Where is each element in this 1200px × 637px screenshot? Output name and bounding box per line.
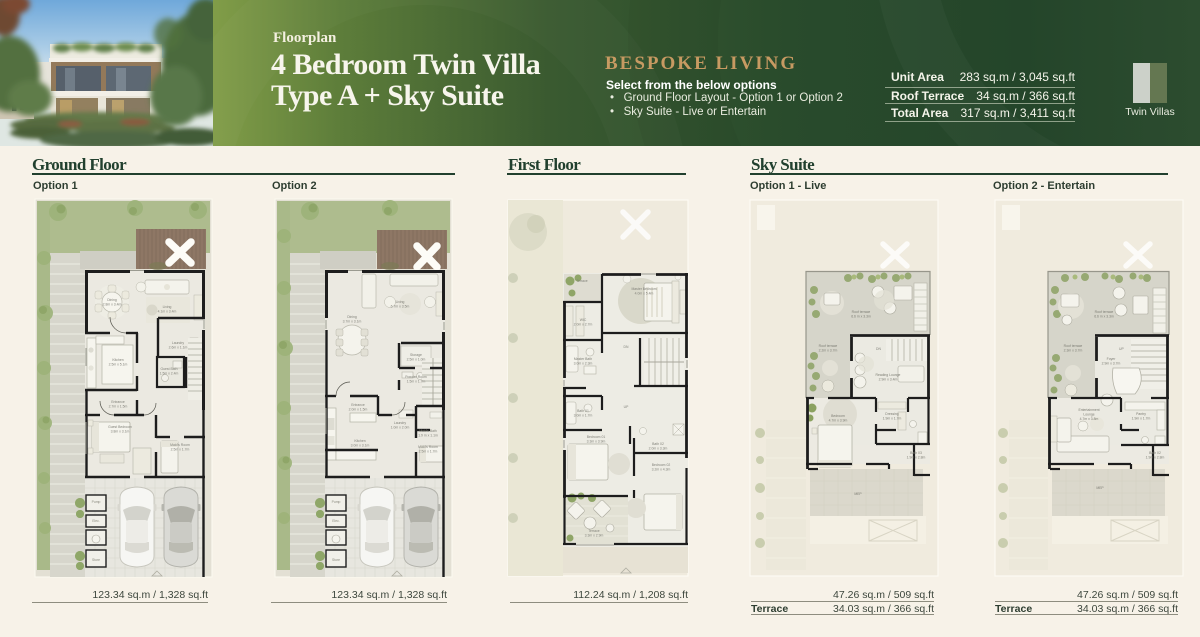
svg-text:4.7m x 3.9m: 4.7m x 3.9m [829,419,848,423]
svg-text:Entrance: Entrance [111,400,125,404]
svg-text:Store: Store [92,558,100,562]
svg-text:Bedroom 01: Bedroom 01 [587,435,606,439]
svg-text:Maid's Room: Maid's Room [170,443,190,447]
svg-text:DN: DN [624,345,629,349]
svg-text:Powder Room: Powder Room [405,375,427,379]
svg-text:Pump: Pump [92,500,101,504]
svg-text:Reading Lounge: Reading Lounge [876,373,901,377]
svg-text:Bedroom 02: Bedroom 02 [652,463,671,467]
svg-text:Maid's Room: Maid's Room [418,445,438,449]
svg-text:4.7m x 3.8m: 4.7m x 3.8m [1080,417,1099,421]
svg-text:1.5m x 2.4m: 1.5m x 2.4m [160,372,179,376]
svg-text:Elec.: Elec. [332,519,340,523]
svg-text:3.3m x 3.9m: 3.3m x 3.9m [587,440,606,444]
svg-text:3.7m x 3.1m: 3.7m x 3.1m [343,320,362,324]
svg-text:1.9 m x 1.1m: 1.9 m x 1.1m [418,434,438,438]
svg-text:Guest Bath: Guest Bath [161,367,178,371]
svg-text:2.6m x 1.1m: 2.6m x 1.1m [169,346,188,350]
svg-text:Entrance: Entrance [351,403,365,407]
svg-text:1.5m x 1.7m: 1.5m x 1.7m [407,380,426,384]
svg-text:2.2m x 3.7m: 2.2m x 3.7m [819,349,838,353]
svg-text:6.6 m x 3.3m: 6.6 m x 3.3m [1094,315,1114,319]
svg-text:2.5m x 1.7m: 2.5m x 1.7m [419,450,438,454]
svg-text:3.0m x 1.7m: 3.0m x 1.7m [574,414,593,418]
svg-text:1.0m x 2.0m: 1.0m x 2.0m [391,426,410,430]
svg-text:3.8m x 3.1m: 3.8m x 3.1m [111,430,130,434]
svg-text:4.0m x 5.4m: 4.0m x 5.4m [635,292,654,296]
svg-text:Kitchen: Kitchen [112,358,123,362]
svg-text:1.9m x 2.8m: 1.9m x 2.8m [907,456,926,460]
svg-text:2.8m x 3.4m: 2.8m x 3.4m [103,303,122,307]
svg-text:Roof terrace: Roof terrace [1095,310,1114,314]
svg-text:2.5m x 5.1m: 2.5m x 5.1m [109,363,128,367]
svg-text:Master Bath: Master Bath [574,357,592,361]
svg-text:Roof terrace: Roof terrace [1064,344,1083,348]
svg-text:UP: UP [1119,347,1124,351]
svg-text:Bedroom: Bedroom [831,414,845,418]
svg-text:Pump: Pump [332,500,341,504]
svg-text:2.9m x 3.7m: 2.9m x 3.7m [1102,362,1121,366]
svg-text:2.9m x 3.4m: 2.9m x 3.4m [879,378,898,382]
svg-text:3.0m x 2.3m: 3.0m x 2.3m [574,362,593,366]
svg-text:Terrace: Terrace [576,279,587,283]
svg-text:3.2m x 4.3m: 3.2m x 4.3m [652,468,671,472]
svg-text:Elec.: Elec. [92,519,100,523]
svg-text:Bath 02: Bath 02 [652,442,664,446]
svg-text:2.0m x 3.3m: 2.0m x 3.3m [649,447,668,451]
svg-text:WIC: WIC [580,318,587,322]
svg-text:Foyer: Foyer [1107,357,1117,361]
svg-text:Dining: Dining [347,315,357,319]
svg-text:2.3m x 3.7m: 2.3m x 3.7m [1064,349,1083,353]
svg-text:2.0m x 2.7m: 2.0m x 2.7m [574,323,593,327]
svg-text:3.3m x 2.9m: 3.3m x 2.9m [585,534,604,538]
svg-text:Dressing: Dressing [885,412,898,416]
svg-text:Living: Living [396,300,405,304]
svg-text:Storage: Storage [410,353,422,357]
svg-text:Dining: Dining [107,298,117,302]
svg-text:Guest Bedroom: Guest Bedroom [108,425,132,429]
svg-text:Roof terrace: Roof terrace [852,310,871,314]
svg-text:Kitchen: Kitchen [354,439,365,443]
svg-text:Roof terrace: Roof terrace [819,344,838,348]
svg-text:4.1m x 3.4m: 4.1m x 3.4m [158,310,177,314]
svg-text:1.9m x 1.7m: 1.9m x 1.7m [883,417,902,421]
svg-text:MEP: MEP [854,492,862,496]
svg-text:3.0m x 3.1m: 3.0m x 3.1m [351,444,370,448]
svg-text:Entertainment: Entertainment [1078,408,1099,412]
svg-text:Store: Store [332,558,340,562]
svg-text:2.5m x 1.7m: 2.5m x 1.7m [171,448,190,452]
svg-text:Laundry: Laundry [172,341,185,345]
svg-text:Bath 01: Bath 01 [577,409,589,413]
svg-text:Lounge: Lounge [1083,413,1094,417]
svg-text:Bath 02: Bath 02 [1149,451,1161,455]
svg-text:Terrace: Terrace [588,529,599,533]
svg-text:Living: Living [163,305,172,309]
svg-text:2.0m x 1.5m: 2.0m x 1.5m [349,408,368,412]
svg-text:Maid's Bath: Maid's Bath [419,429,437,433]
svg-text:1.9m x 1.7m: 1.9m x 1.7m [1132,417,1151,421]
svg-text:DN: DN [876,347,881,351]
svg-text:MEP: MEP [1096,486,1104,490]
svg-text:2.5m x 1.0m: 2.5m x 1.0m [407,358,426,362]
svg-text:Laundry: Laundry [394,421,407,425]
svg-text:1.9m x 2.8m: 1.9m x 2.8m [1146,456,1165,460]
svg-text:UP: UP [624,405,629,409]
svg-text:2.7m x 1.5m: 2.7m x 1.5m [109,405,128,409]
svg-text:6.7m x 3.5m: 6.7m x 3.5m [391,305,410,309]
svg-text:Pantry: Pantry [1136,412,1146,416]
svg-text:Bath 03: Bath 03 [910,451,922,455]
svg-text:Master Bedroom: Master Bedroom [631,287,656,291]
svg-text:6.6 m x 3.3m: 6.6 m x 3.3m [851,315,871,319]
